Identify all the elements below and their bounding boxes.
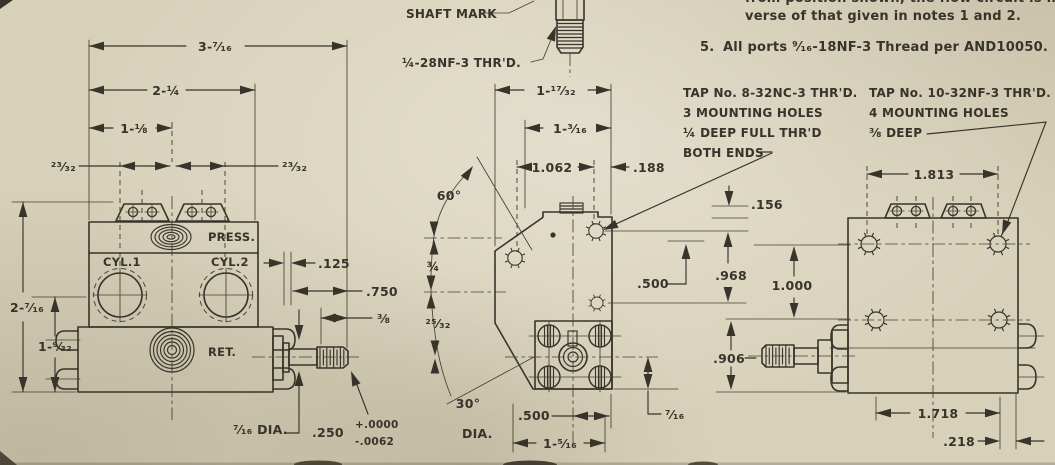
dim-sv-w1: 1-¹⁷⁄₃₂ [536, 83, 576, 98]
dim-sv-side-offset: ⁷⁄₁₆ [665, 407, 685, 422]
note-line-verse: verse of that given in notes 1 and 2. [745, 9, 1021, 24]
dim-sv-w4: .188 [633, 160, 665, 175]
note5-number: 5. [700, 40, 714, 55]
dim-sv-w2: 1-³⁄₁₆ [553, 121, 587, 136]
press-port [151, 225, 191, 250]
cyl1-port [93, 268, 147, 322]
dim-sv-h2: ²⁵⁄₃₂ [425, 316, 450, 331]
dim-width-body: 2-¼ [152, 83, 180, 98]
dim-sv-h1: ¾ [426, 259, 439, 274]
dim-boss-dia: ⁷⁄₁₆ DIA. [233, 422, 288, 437]
tap-left-line3: ¼ DEEP FULL THR'D [683, 126, 822, 140]
dim-sv-angle-bottom: 30° [456, 396, 480, 411]
tap-right-line1: TAP No. 10-32NF-3 THR'D. [869, 86, 1051, 100]
front-output-shaft [252, 336, 360, 380]
tap-left-line4: BOTH ENDS [683, 146, 764, 160]
dim-sv-angle-top: 60° [437, 188, 461, 203]
dim-plate: .125 [318, 256, 350, 271]
dim-width-center: 1-⅛ [120, 121, 148, 136]
notes-block: from position shown, the flow circuit is… [700, 0, 1055, 55]
dim-sv-w3: 1.062 [532, 160, 573, 175]
cyl2-port [199, 268, 253, 322]
dim-shaft-dia: .250 [312, 425, 344, 440]
dim-height-lower: 1-⁹⁄₃₂ [38, 339, 72, 354]
dim-tol-minus: -.0062 [355, 436, 394, 448]
dim-sv-bottom-offset: .500 [518, 408, 550, 423]
tap-right-line2: 4 MOUNTING HOLES [869, 106, 1009, 120]
photo-edge-artifacts [0, 0, 1055, 465]
press-label: PRESS. [208, 230, 255, 244]
note-line-cut: from position shown, the flow circuit is… [745, 0, 1055, 6]
drawing-page: from position shown, the flow circuit is… [0, 0, 1055, 465]
cyl1-label: CYL.1 [103, 255, 141, 269]
dim-tol-plus: +.0000 [355, 419, 399, 431]
dim-sv-bottom-width: 1-⁵⁄₁₆ [543, 436, 577, 451]
dim-rv-h1: .968 [715, 268, 747, 283]
dim-bracket-right: ²³⁄₃₂ [282, 159, 307, 174]
dim-rv-bottom-span: 1.718 [918, 406, 959, 421]
dim-rv-lip: .156 [751, 197, 783, 212]
front-view: PRESS. CYL.1 CYL.2 RET. [46, 122, 360, 420]
dim-shaft-len: .750 [366, 284, 398, 299]
dim-rv-top-span: 1.813 [914, 167, 955, 182]
dim-dia-label: DIA. [462, 426, 493, 441]
rear-output-shaft [748, 325, 855, 391]
shaft-mark-label: SHAFT MARK [406, 7, 497, 21]
shaft-detail: SHAFT MARK ¼-28NF-3 THR'D. [402, 0, 584, 77]
engineering-drawing: from position shown, the flow circuit is… [0, 0, 1055, 465]
cyl2-label: CYL.2 [211, 255, 249, 269]
shaft-thread-label: ¼-28NF-3 THR'D. [402, 56, 521, 70]
tap-right-line3: ⅜ DEEP [869, 126, 922, 140]
dim-rv-h2: 1.000 [772, 278, 813, 293]
dim-sv-right-offset: .500 [637, 276, 669, 291]
tap-left-line2: 3 MOUNTING HOLES [683, 106, 823, 120]
ret-label: RET. [208, 345, 236, 359]
dim-height-total: 2-⁷⁄₁₆ [10, 300, 44, 315]
side-view-dimensions: 1-¹⁷⁄₃₂ 1-³⁄₁₆ 1.062 .188 60° ¾ ²⁵⁄₃₂ 30… [425, 83, 704, 452]
dim-rv-edge-offset: .218 [943, 434, 975, 449]
dim-width-total: 3-⁷⁄₁₆ [198, 39, 232, 54]
tap-callout-right: TAP No. 10-32NF-3 THR'D. 4 MOUNTING HOLE… [869, 86, 1051, 237]
tap-left-line1: TAP No. 8-32NC-3 THR'D. [683, 86, 858, 100]
dim-bracket-left: ²³⁄₃₂ [51, 159, 76, 174]
note5-text: All ports ⁹⁄₁₆-18NF-3 Thread per AND1005… [723, 40, 1048, 55]
dim-rv-h3: .906 [713, 351, 745, 366]
dim-thread-len: ⅜ [377, 311, 390, 326]
